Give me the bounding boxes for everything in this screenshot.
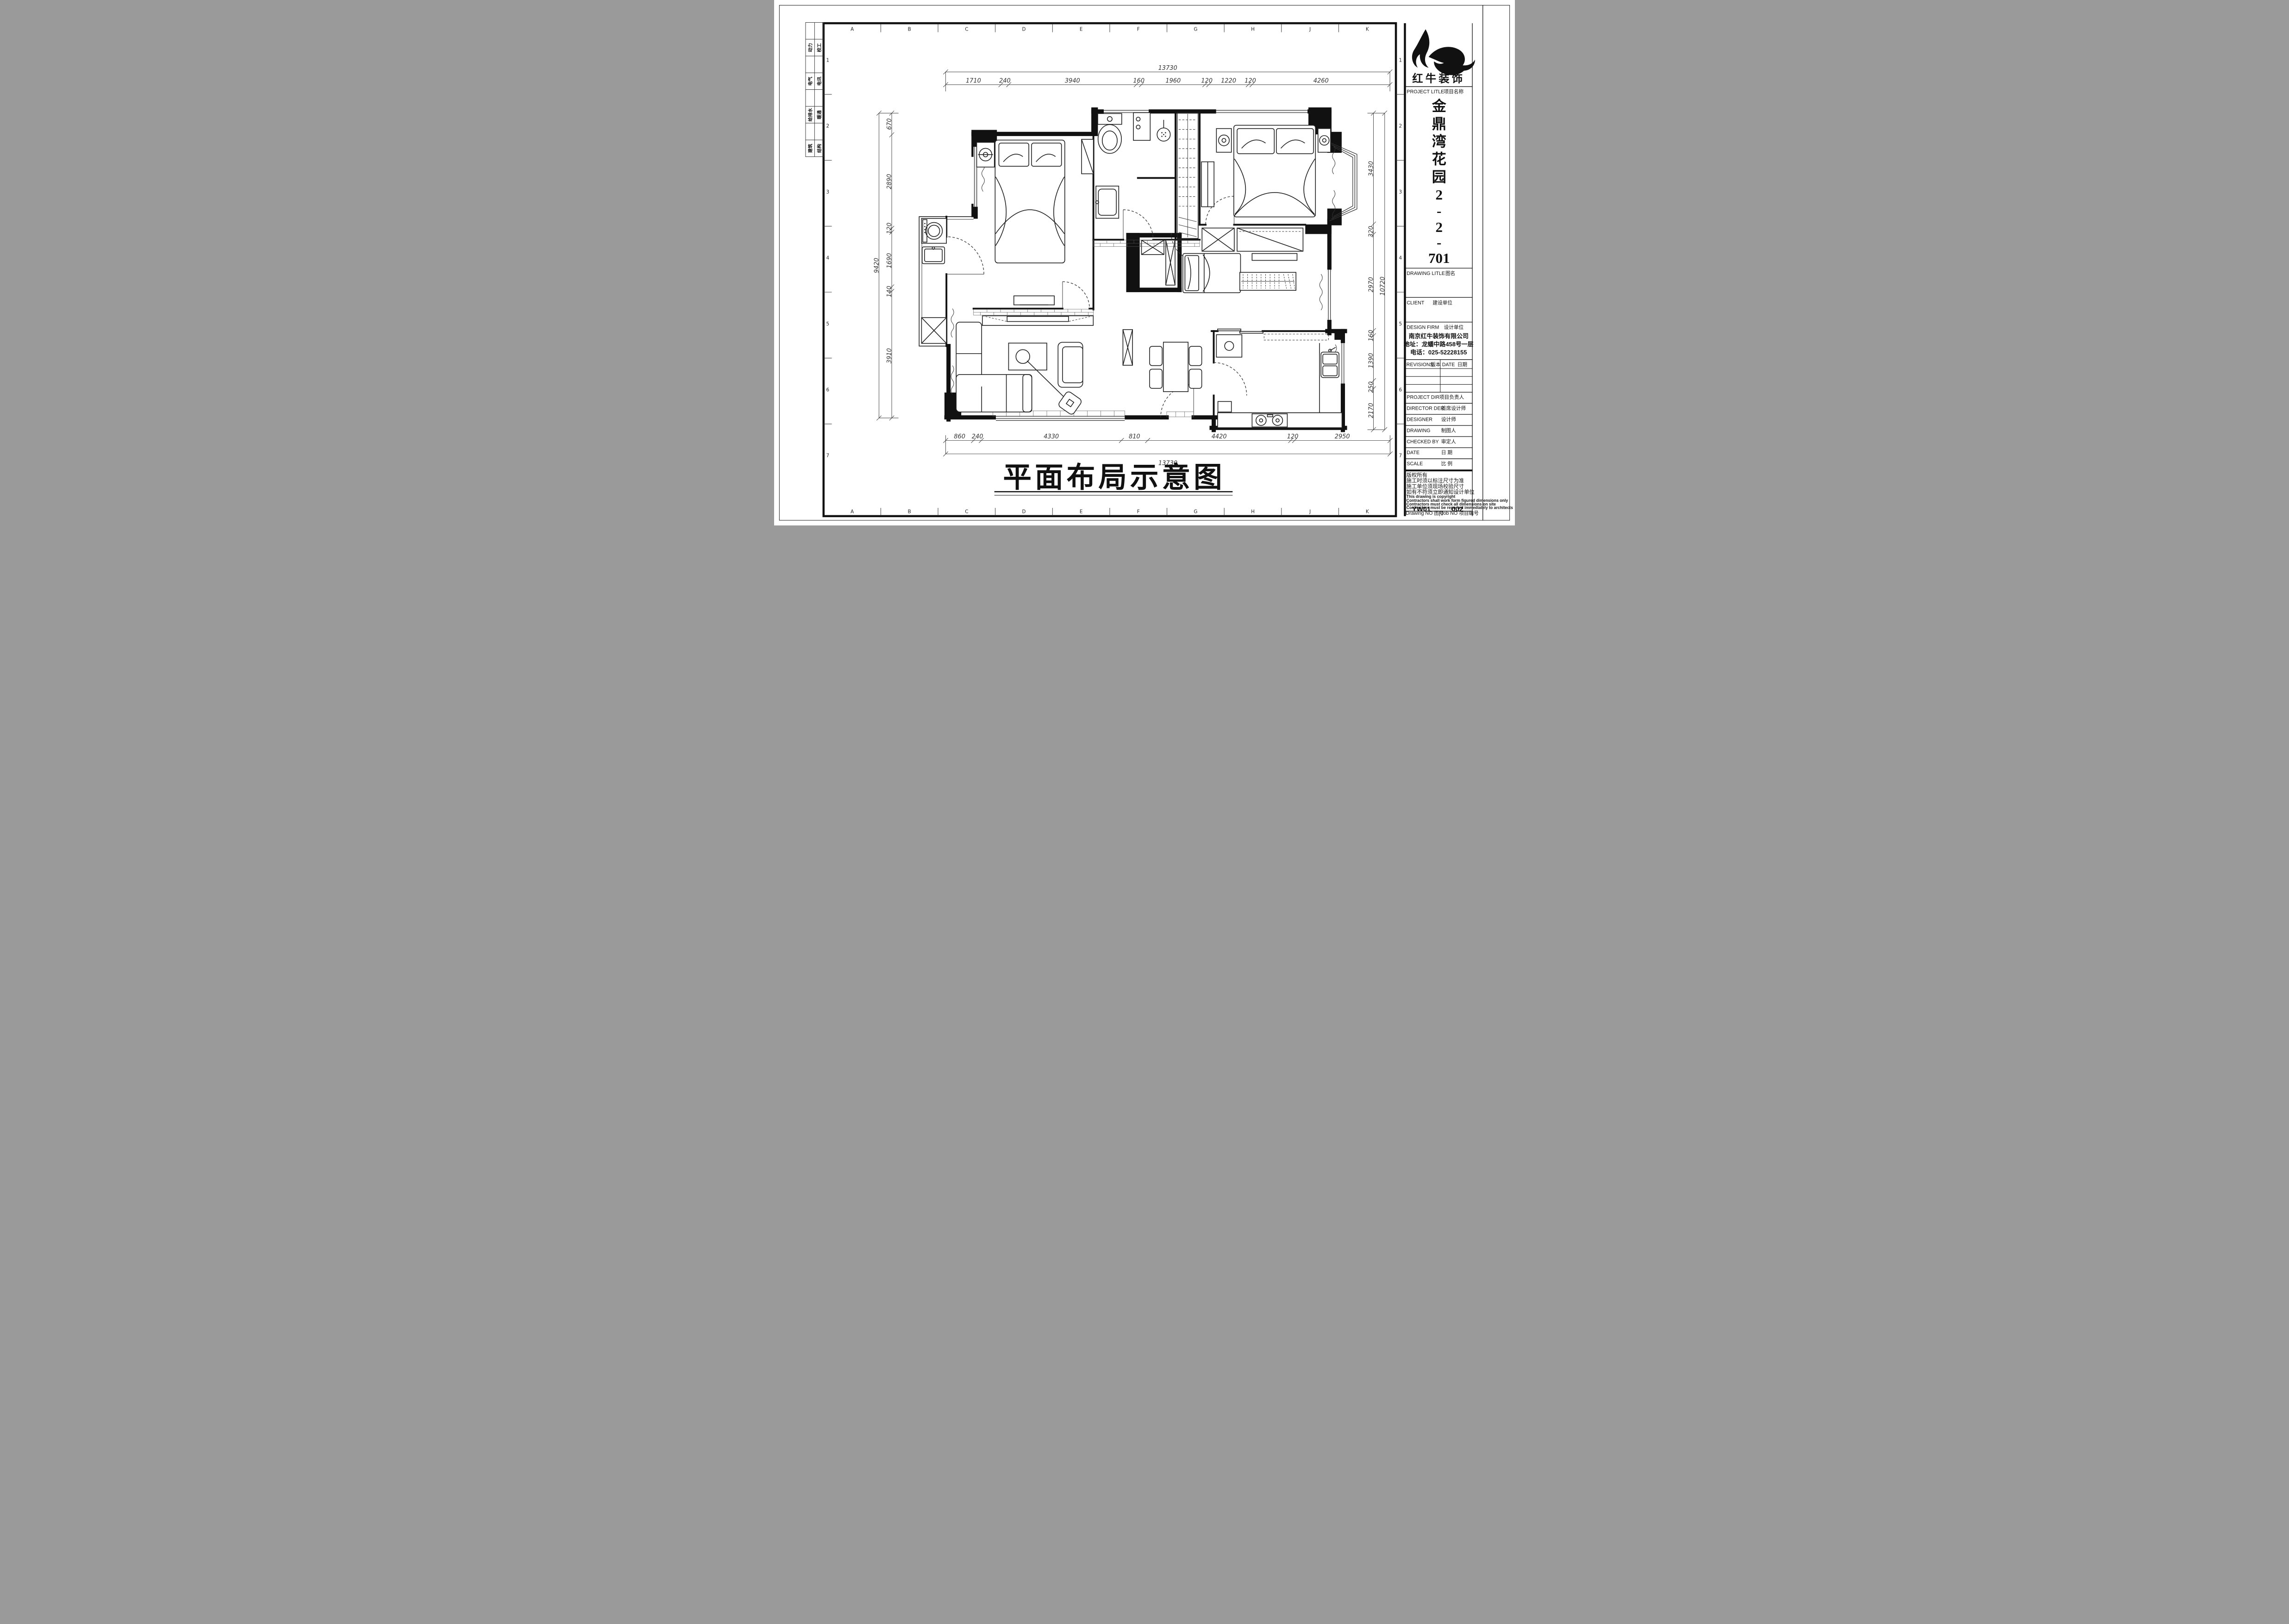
dim: 670 bbox=[886, 119, 893, 130]
discipline-label: 校工 bbox=[816, 43, 822, 52]
cloakroom-study bbox=[1183, 228, 1303, 293]
grid-letter: A bbox=[851, 509, 854, 514]
grid-letter: F bbox=[1137, 509, 1140, 514]
note-line: 施工时须以标注尺寸为准 bbox=[1407, 477, 1464, 484]
grid-number: 5 bbox=[1399, 321, 1402, 327]
dim: 120 bbox=[1287, 433, 1299, 440]
plan-title-text: 平面布局示意图 bbox=[1003, 462, 1226, 493]
project-name-char: 2 bbox=[1435, 187, 1443, 203]
dim: 1220 bbox=[1221, 78, 1236, 85]
grid-number: 4 bbox=[826, 256, 830, 261]
wardrobe-box bbox=[1202, 228, 1234, 251]
checked-by-label: CHECKED BY bbox=[1407, 439, 1438, 444]
grid-letter: D bbox=[1022, 509, 1026, 514]
grid-letter: D bbox=[1022, 26, 1026, 32]
designer-label-zh: 设计师 bbox=[1441, 416, 1456, 422]
dim: 2170 bbox=[1368, 403, 1375, 418]
design-firm-label-zh: 设计单位 bbox=[1444, 325, 1464, 331]
entry-threshold bbox=[1167, 412, 1194, 417]
dim: 4260 bbox=[1313, 78, 1329, 85]
desk bbox=[1014, 296, 1054, 305]
vanity-sink bbox=[1095, 186, 1119, 219]
scale-label: SCALE bbox=[1407, 461, 1423, 467]
dim: 120 bbox=[1245, 78, 1256, 85]
grid-number: 7 bbox=[1399, 453, 1402, 459]
living-room bbox=[956, 316, 1093, 415]
brand-name: 红牛装饰 bbox=[1412, 72, 1465, 85]
project-name-char: 湾 bbox=[1432, 134, 1446, 150]
base-cabinet bbox=[1218, 401, 1232, 412]
grid-letter: B bbox=[908, 509, 911, 514]
title-block: 红牛装饰 PROJECT LITLE 项目名称 金 鼎 湾 花 园 2 - 2 … bbox=[1404, 29, 1513, 516]
note-line: 版权所有 bbox=[1407, 472, 1427, 478]
grid-letter: H bbox=[1251, 509, 1255, 514]
drawing-title-label-zh: 图名 bbox=[1445, 270, 1455, 276]
grid-number: 1 bbox=[826, 57, 830, 63]
grid-number: 6 bbox=[1399, 387, 1402, 393]
drawing-sheet: A B C D E F G H J K A B C D E F G H J K bbox=[774, 0, 1515, 525]
project-dir-label-zh: 项目负责人 bbox=[1439, 394, 1464, 400]
discipline-label: 电讯 bbox=[816, 76, 822, 86]
grid-letter: B bbox=[908, 26, 911, 32]
date-col-label-zh: 日期 bbox=[1457, 362, 1467, 368]
master-bedroom bbox=[1201, 125, 1331, 217]
discipline-label: 动力 bbox=[807, 43, 813, 52]
date-label-zh: 日 期 bbox=[1441, 450, 1452, 456]
washing-machine bbox=[921, 219, 946, 244]
copyright-notes: 版权所有 施工时须以标注尺寸为准 施工单位须现场校验尺寸 如有不符须立即通知设计… bbox=[1407, 472, 1513, 510]
dim: 160 bbox=[1368, 330, 1375, 342]
grid-letter: K bbox=[1366, 26, 1369, 32]
dim-total: 10720 bbox=[1379, 277, 1386, 296]
dim: 2950 bbox=[1335, 433, 1350, 440]
balcony-cabinet bbox=[921, 318, 946, 344]
dim: 120 bbox=[886, 223, 893, 234]
revisions-label: REVISIONS bbox=[1407, 362, 1433, 368]
dim: 3910 bbox=[886, 348, 893, 363]
revisions-label-zh: 版本 bbox=[1431, 362, 1441, 368]
grid-number: 3 bbox=[1399, 189, 1402, 195]
project-label-zh: 项目名称 bbox=[1444, 88, 1464, 94]
grid-letter: A bbox=[851, 26, 854, 32]
company-logo-icon bbox=[1412, 29, 1475, 75]
firm-name: 南京红牛装饰有限公司 bbox=[1409, 333, 1469, 340]
nightstand bbox=[977, 142, 994, 167]
grid-number: 2 bbox=[826, 124, 830, 129]
elevator-core bbox=[1126, 233, 1182, 292]
dim: 4420 bbox=[1212, 433, 1227, 440]
bed-master bbox=[1234, 125, 1315, 217]
scale-label-zh: 比 例 bbox=[1441, 461, 1452, 467]
kitchen-counter-right bbox=[1320, 343, 1339, 412]
plan-title: 平面布局示意图 bbox=[994, 462, 1233, 495]
grid-letter: G bbox=[1194, 509, 1197, 514]
dim: 810 bbox=[1129, 433, 1140, 440]
bench bbox=[1252, 254, 1297, 261]
grid-number: 5 bbox=[826, 321, 830, 327]
grid-letter: E bbox=[1080, 509, 1083, 514]
nightstand bbox=[1318, 129, 1331, 152]
discipline-table: 动力 校工 电气 电讯 给排水 暖通 建筑 结构 bbox=[806, 23, 824, 157]
project-name-char: 鼎 bbox=[1432, 116, 1446, 132]
project-dir-label: PROJECT DIR bbox=[1407, 394, 1439, 400]
drawing-title-label: DRAWING LITLE bbox=[1407, 271, 1445, 276]
dim: 160 bbox=[1133, 78, 1144, 85]
grid-number: 2 bbox=[1399, 124, 1402, 129]
bath-cabinet bbox=[1133, 112, 1150, 140]
closet-strip bbox=[1177, 112, 1198, 238]
date-col-label: DATE bbox=[1442, 362, 1455, 368]
dim: 1390 bbox=[1368, 353, 1375, 368]
dim-total: 13730 bbox=[1158, 65, 1177, 72]
grid-letter: J bbox=[1309, 509, 1311, 514]
grid-number: 1 bbox=[1399, 57, 1402, 63]
grid-number: 4 bbox=[1399, 256, 1402, 261]
side-cabinet bbox=[1123, 330, 1132, 365]
grid-letter: F bbox=[1137, 26, 1140, 32]
grid-letter: C bbox=[965, 26, 968, 32]
dim: 240 bbox=[999, 78, 1011, 85]
discipline-label: 给排水 bbox=[807, 108, 813, 121]
dim: 4330 bbox=[1044, 433, 1059, 440]
gas-stove bbox=[1252, 414, 1287, 427]
dim: 120 bbox=[1201, 78, 1213, 85]
laundry-sink bbox=[922, 247, 945, 263]
wall-cabinet-dashed bbox=[1264, 334, 1328, 340]
floor-plan: 1710 240 3940 160 1960 120 1220 120 4260… bbox=[874, 65, 1393, 495]
dim: 240 bbox=[972, 433, 983, 440]
drawing-by-label-zh: 制图人 bbox=[1441, 427, 1456, 433]
grid-letter: H bbox=[1251, 26, 1255, 32]
discipline-label: 暖通 bbox=[816, 110, 822, 119]
drawing-no-value: YW01 bbox=[1412, 506, 1431, 513]
dining-table bbox=[1150, 342, 1202, 392]
checked-by-label-zh: 审定人 bbox=[1441, 438, 1456, 444]
grid-letter: J bbox=[1309, 26, 1311, 32]
dim-total: 9420 bbox=[874, 258, 881, 273]
dim: 320 bbox=[1368, 226, 1375, 237]
grid-letter: E bbox=[1080, 26, 1083, 32]
project-name-char: - bbox=[1437, 234, 1441, 250]
design-firm-label: DESIGN FIRM bbox=[1407, 325, 1439, 331]
designer-label: DESIGNER bbox=[1407, 417, 1432, 422]
firm-phone: 电话：025-52228155 bbox=[1410, 349, 1467, 356]
dim: 2890 bbox=[886, 174, 893, 189]
project-label: PROJECT LITLE bbox=[1407, 89, 1444, 94]
director-label: DIRECTOR DER bbox=[1407, 406, 1444, 411]
dim: 3430 bbox=[1368, 161, 1375, 176]
discipline-label: 结构 bbox=[816, 144, 822, 153]
project-name-char: 金 bbox=[1432, 98, 1447, 114]
discipline-label: 电气 bbox=[807, 76, 813, 86]
grid-number: 3 bbox=[826, 189, 830, 195]
closet-long bbox=[1237, 228, 1303, 251]
dim: 3940 bbox=[1065, 78, 1080, 85]
bed-single bbox=[1183, 254, 1241, 293]
dim: 1690 bbox=[886, 253, 893, 269]
toilet bbox=[1098, 113, 1122, 153]
director-label-zh: 首席设计师 bbox=[1441, 405, 1466, 411]
client-label-zh: 建设单位 bbox=[1432, 300, 1452, 306]
dim: 1960 bbox=[1165, 78, 1181, 85]
firm-address: 地址：龙蟠中路458号一层 bbox=[1404, 341, 1474, 348]
project-name-char: 2 bbox=[1435, 219, 1443, 235]
grid-number: 7 bbox=[826, 453, 830, 459]
project-name-char: - bbox=[1437, 203, 1441, 219]
dim: 1710 bbox=[966, 78, 981, 85]
client-label: CLIENT bbox=[1407, 300, 1424, 306]
grid-letter: C bbox=[965, 509, 968, 514]
wardrobe-hanging bbox=[1240, 272, 1296, 290]
project-name: 金 鼎 湾 花 园 2 - 2 - 701 bbox=[1428, 98, 1450, 266]
dim: 2970 bbox=[1368, 277, 1375, 292]
grid-letter: G bbox=[1194, 26, 1197, 32]
drawing-by-label: DRAWING bbox=[1407, 428, 1430, 433]
armchair bbox=[1058, 342, 1082, 387]
job-no-value: 002 bbox=[1451, 506, 1463, 513]
dim: 140 bbox=[886, 286, 893, 297]
date-label: DATE bbox=[1407, 450, 1420, 456]
dim: 860 bbox=[954, 433, 965, 440]
project-name-char: 花 bbox=[1432, 151, 1446, 168]
note-line: 施工单位须现场校验尺寸 bbox=[1407, 483, 1464, 489]
bedroom-2 bbox=[977, 139, 1094, 305]
tv-cabinet bbox=[982, 316, 1093, 325]
bathroom bbox=[1095, 112, 1174, 218]
project-name-char: 园 bbox=[1432, 169, 1446, 185]
dining-area bbox=[1123, 330, 1201, 392]
grid-band: A B C D E F G H J K A B C D E F G H J K bbox=[824, 24, 1404, 516]
water-heater bbox=[1216, 335, 1242, 357]
kitchen bbox=[1216, 334, 1342, 428]
dim: 250 bbox=[1368, 381, 1375, 393]
grid-letter: K bbox=[1366, 509, 1369, 514]
nightstand bbox=[1216, 129, 1231, 152]
grid-number: 6 bbox=[826, 387, 830, 393]
bed-double bbox=[995, 140, 1064, 263]
discipline-label: 建筑 bbox=[807, 144, 813, 153]
project-name-char: 701 bbox=[1428, 250, 1450, 266]
